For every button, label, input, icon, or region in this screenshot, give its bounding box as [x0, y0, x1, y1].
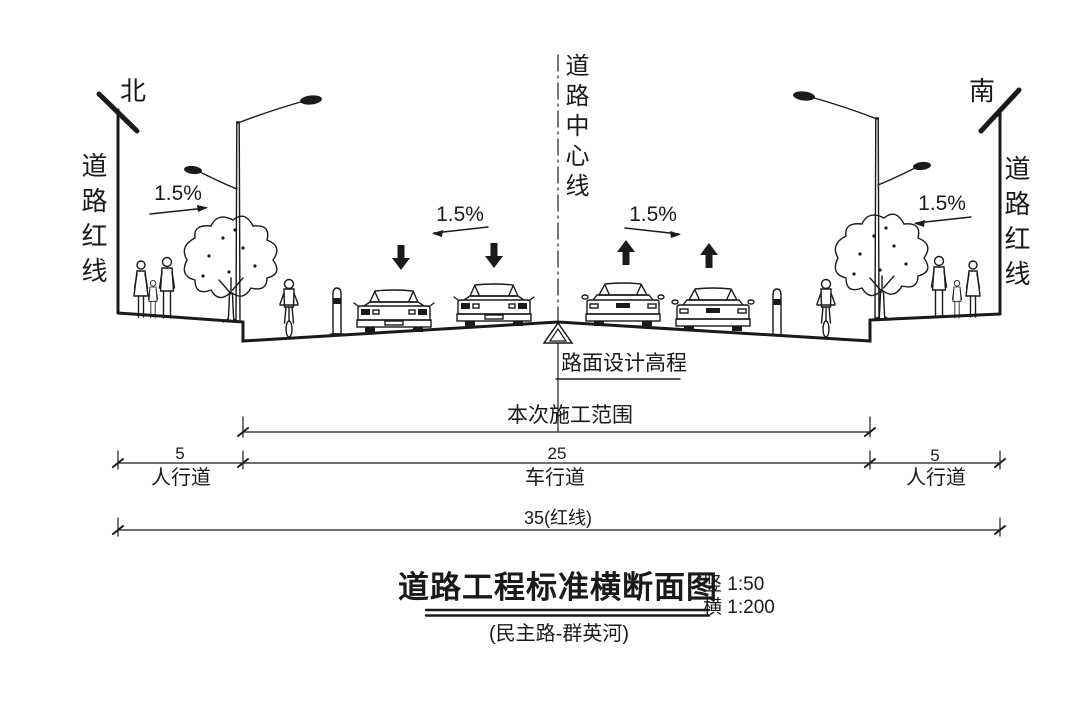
street-tree-left: [184, 216, 277, 322]
car-rear-1: [582, 283, 664, 326]
elevation-marker-outer: [544, 323, 572, 343]
road-cross-section-drawing: 北 南 道路红线 道路红线 道路中心线 1.5% 1.5% 1.5% 1.5% …: [0, 0, 1080, 718]
south-label: 南: [969, 78, 995, 104]
dim-label-carriageway: 车行道: [525, 468, 585, 488]
street-lamp-right: [793, 90, 932, 318]
pedestrians-right: [932, 257, 981, 319]
title-underline: [426, 610, 709, 616]
cross-section-linework: [0, 0, 1080, 718]
drawing-title: 道路工程标准横断面图: [398, 572, 718, 603]
pedestrians-left: [134, 258, 175, 319]
elevation-note: 路面设计高程: [561, 353, 687, 374]
construction-note: 本次施工范围: [507, 405, 633, 426]
slope-arrow-sidewalk-left: [150, 205, 208, 214]
redline-label-left: 道路红线: [80, 152, 106, 292]
dim-value-sidewalk-right: 5: [930, 447, 939, 464]
slope-label-sidewalk-left: 1.5%: [154, 183, 202, 204]
bollard-left: [331, 288, 343, 334]
cyclist-right: [817, 280, 835, 338]
car-front-1: [354, 290, 434, 332]
north-label: 北: [120, 78, 146, 104]
dim-value-sidewalk-left: 5: [175, 445, 184, 462]
bollard-right: [771, 289, 783, 335]
slope-arrow-lane-right: [625, 228, 681, 238]
scale-horizontal: 横 1:200: [703, 598, 775, 617]
dim-label-total: 35(红线): [524, 509, 592, 527]
traffic-arrow-down-1: [392, 245, 410, 270]
slope-label-lane-left: 1.5%: [436, 204, 484, 225]
scale-vertical: 竖 1:50: [703, 575, 764, 594]
street-tree-right: [835, 214, 928, 320]
car-rear-2: [672, 288, 754, 331]
slope-label-lane-right: 1.5%: [629, 204, 677, 225]
traffic-arrow-up-2: [700, 243, 718, 268]
slope-arrow-sidewalk-right: [914, 217, 971, 227]
redline-label-right: 道路红线: [1003, 155, 1029, 295]
pavement-profile: [118, 313, 1000, 341]
car-front-2: [454, 284, 534, 326]
traffic-arrow-up-1: [617, 240, 635, 265]
slope-label-sidewalk-right: 1.5%: [918, 193, 966, 214]
centerline-label: 道路中心线: [562, 53, 586, 203]
cyclist-left: [280, 280, 298, 338]
dim-label-sidewalk-left: 人行道: [151, 468, 211, 488]
dim-value-carriageway: 25: [548, 445, 567, 462]
dim-label-sidewalk-right: 人行道: [906, 468, 966, 488]
drawing-subtitle: (民主路-群英河): [489, 624, 629, 644]
slope-arrow-lane-left: [432, 227, 488, 237]
traffic-arrow-down-2: [485, 243, 503, 268]
